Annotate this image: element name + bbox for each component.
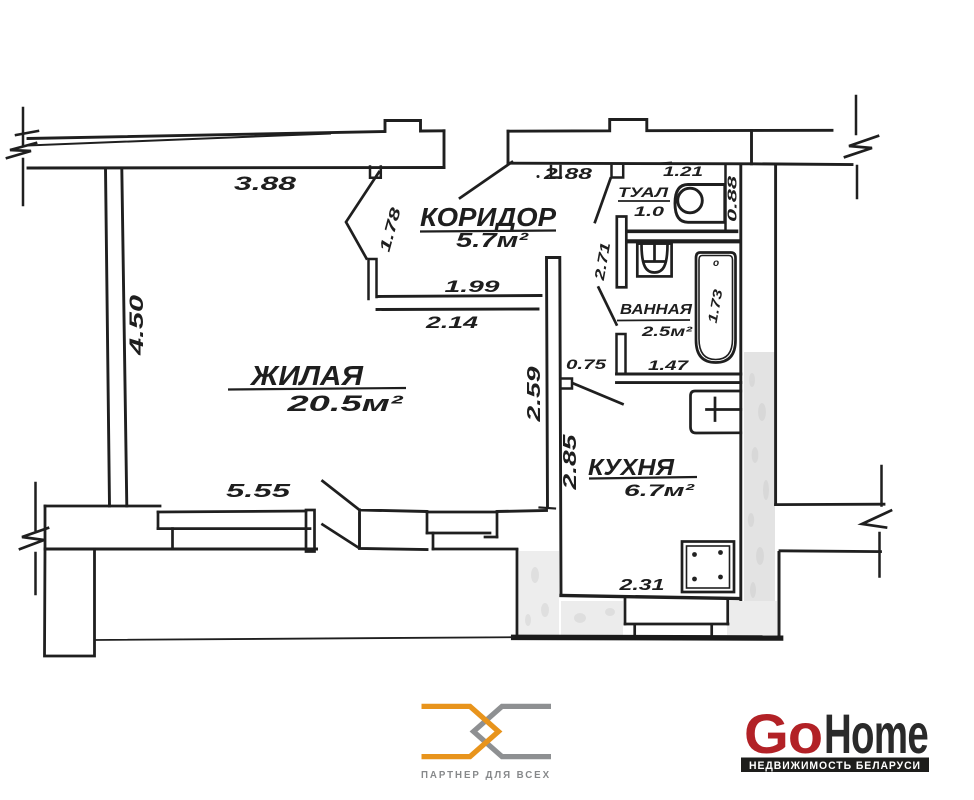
svg-text:2.59: 2.59: [524, 367, 544, 424]
svg-text:2.31: 2.31: [618, 577, 665, 594]
svg-text:Go: Go: [744, 702, 822, 765]
svg-text:ЖИЛАЯ: ЖИЛАЯ: [249, 360, 364, 391]
svg-text:ПАРТНЕР ДЛЯ ВСЕХ: ПАРТНЕР ДЛЯ ВСЕХ: [421, 770, 551, 781]
svg-text:1.47: 1.47: [648, 357, 690, 373]
svg-text:2.14: 2.14: [424, 313, 478, 332]
svg-text:2.88: 2.88: [542, 166, 592, 183]
svg-text:6.7м²: 6.7м²: [624, 481, 696, 500]
svg-text:о: о: [713, 258, 719, 269]
svg-text:2.85: 2.85: [560, 433, 580, 491]
svg-text:3.88: 3.88: [234, 174, 297, 195]
svg-text:1.73: 1.73: [705, 287, 726, 324]
svg-text:1.0: 1.0: [634, 203, 664, 219]
svg-text:2.71: 2.71: [591, 241, 614, 283]
svg-text:НЕДВИЖИМОСТЬ БЕЛАРУСИ: НЕДВИЖИМОСТЬ БЕЛАРУСИ: [749, 760, 921, 772]
svg-text:ВАННАЯ: ВАННАЯ: [620, 301, 693, 318]
svg-text:1.21: 1.21: [663, 164, 703, 179]
svg-text:1.99: 1.99: [445, 277, 501, 296]
svg-text:ТУАЛ: ТУАЛ: [618, 184, 669, 200]
svg-text:2.5м²: 2.5м²: [640, 324, 692, 339]
svg-text:0.75: 0.75: [566, 356, 606, 372]
svg-text:4.50: 4.50: [127, 294, 148, 356]
svg-text:КОРИДОР: КОРИДОР: [420, 202, 557, 232]
svg-text:20.5м²: 20.5м²: [286, 391, 404, 416]
svg-text:5.7м²: 5.7м²: [456, 230, 530, 252]
svg-text:1.78: 1.78: [377, 205, 405, 254]
svg-text:0.88: 0.88: [725, 175, 740, 222]
svg-text:Home: Home: [824, 702, 928, 765]
svg-text:5.55: 5.55: [226, 481, 292, 501]
svg-text:КУХНЯ: КУХНЯ: [588, 454, 675, 480]
